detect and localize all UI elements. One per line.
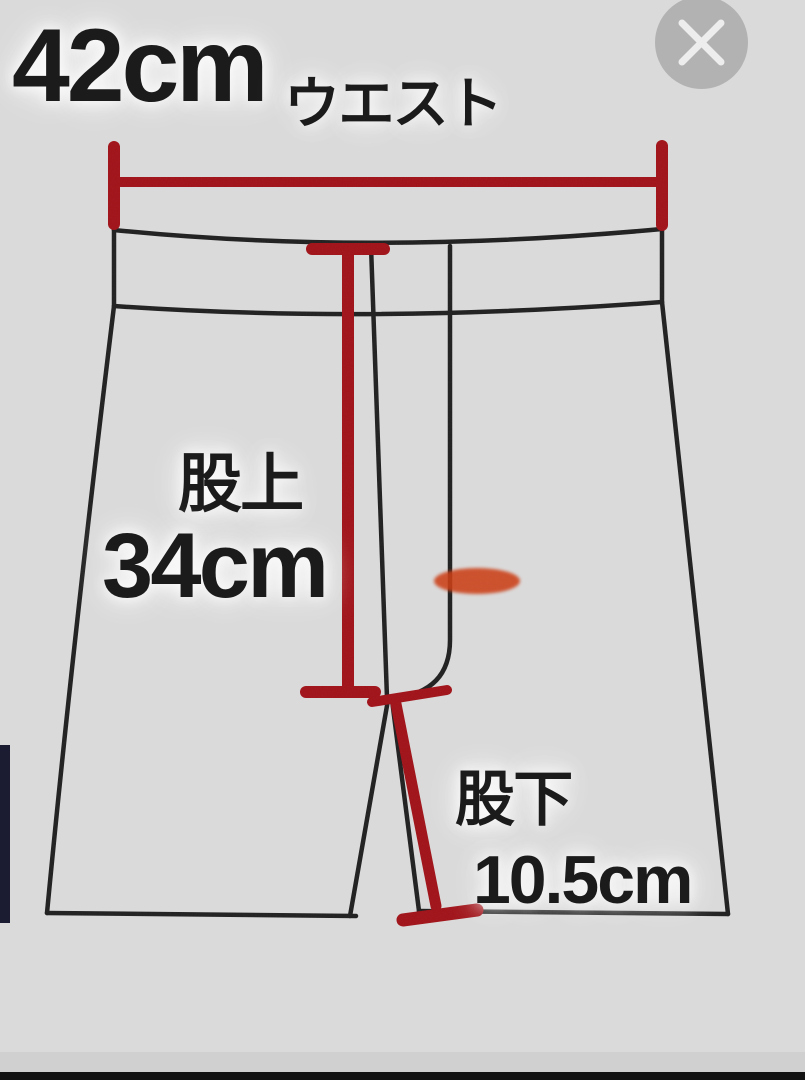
left-edge-navy-bar bbox=[0, 745, 10, 923]
inseam-measure-cap-top bbox=[372, 690, 447, 702]
size-diagram-screen: 42cm ウエスト 股上 34cm 股下 10.5cm bbox=[0, 0, 805, 1080]
right-outer-seam bbox=[662, 302, 728, 914]
rise-label: 股上 bbox=[178, 452, 302, 516]
inseam-label: 股下 bbox=[455, 770, 571, 830]
waistband-bottom-edge bbox=[114, 302, 662, 314]
left-leg-hem bbox=[47, 913, 356, 916]
waist-value: 42cm bbox=[12, 14, 266, 118]
left-inner-seam bbox=[350, 700, 388, 916]
rise-value: 34cm bbox=[102, 520, 326, 612]
orange-highlight-mark bbox=[434, 568, 520, 594]
inseam-value: 10.5cm bbox=[473, 846, 691, 914]
bottom-gray-strip bbox=[0, 1052, 805, 1072]
close-icon bbox=[655, 0, 748, 89]
waistband-top-edge bbox=[114, 229, 662, 243]
close-button[interactable] bbox=[655, 0, 748, 89]
inseam-measure-cap-bottom bbox=[403, 910, 477, 920]
waist-label: ウエスト bbox=[284, 76, 501, 132]
bottom-black-bar bbox=[0, 1072, 805, 1080]
